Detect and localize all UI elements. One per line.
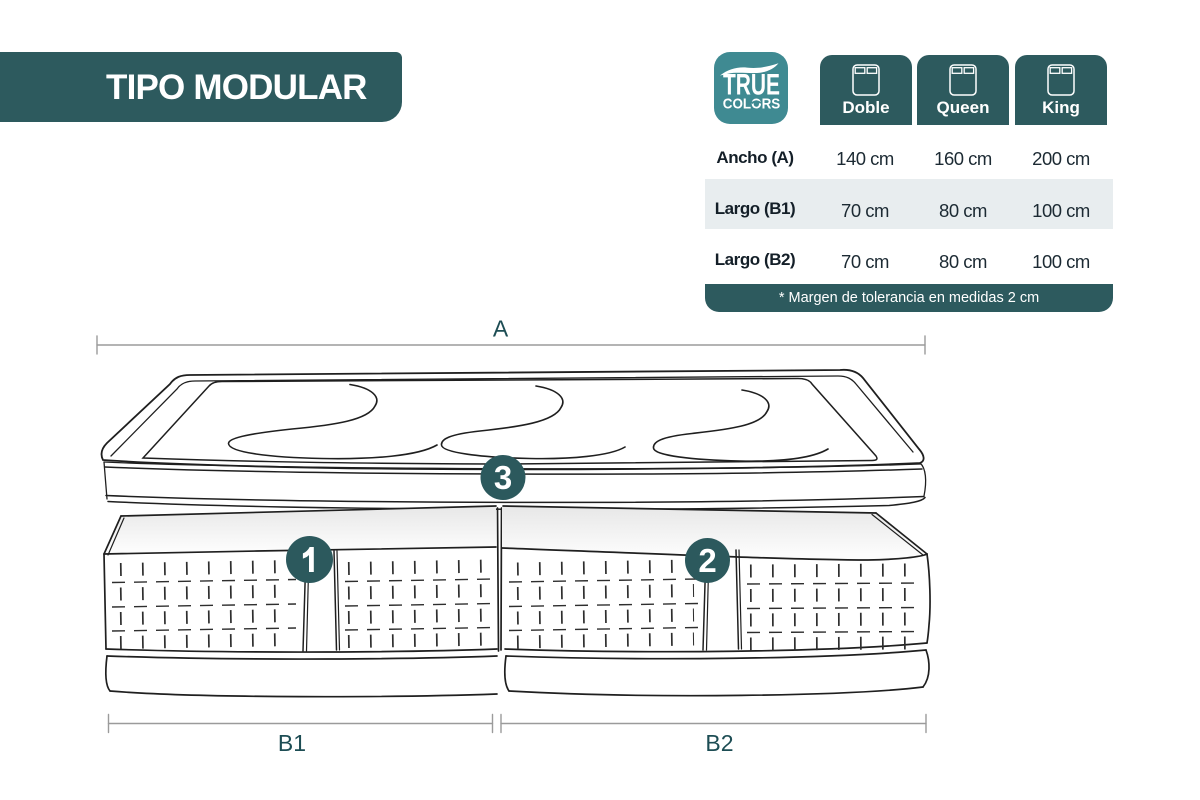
svg-text:B2: B2 — [705, 730, 733, 756]
svg-text:2: 2 — [698, 542, 716, 579]
svg-text:B1: B1 — [278, 730, 306, 756]
svg-text:A: A — [493, 316, 509, 342]
svg-text:3: 3 — [494, 459, 512, 496]
